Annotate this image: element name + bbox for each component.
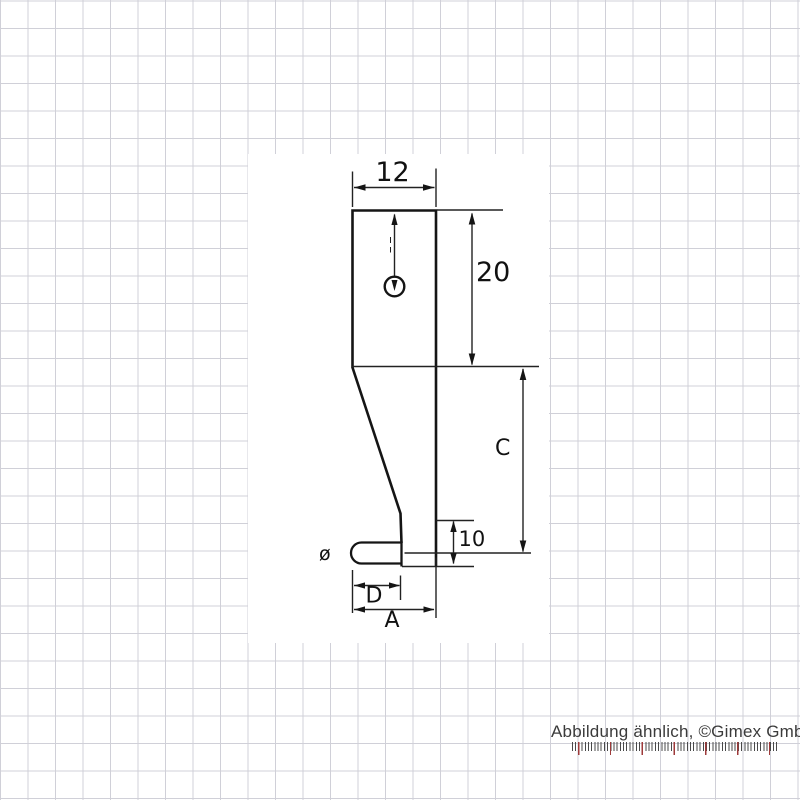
body-slope-edge (353, 368, 402, 544)
indicator-arrow-up (391, 214, 397, 226)
dim-12-arrow-left (354, 184, 366, 191)
indicator-circle-arrow-down (392, 280, 398, 291)
dim-20-arrow-top (469, 213, 476, 225)
dim-12-label: 12 (375, 157, 409, 188)
dim-10-label: 10 (459, 527, 486, 551)
dim-20-label: 20 (476, 257, 510, 288)
caption-text: Abbildung ähnlich, ©Gimex GmbH (551, 723, 800, 741)
probe-tip (351, 543, 401, 567)
dim-10-arrow-bottom (450, 553, 456, 564)
diameter-symbol: ø (319, 543, 331, 565)
dim-20-arrow-bottom (469, 354, 476, 366)
dim-D-label: D (366, 584, 383, 609)
dim-10-arrow-top (450, 521, 456, 532)
ruler-graphic (572, 742, 777, 755)
dim-D-arrow-right (389, 582, 400, 588)
dim-C-arrow-bottom (520, 541, 527, 553)
dim-12-arrow-right (423, 184, 435, 191)
dim-A-label: A (384, 608, 399, 633)
dim-C-label: C (495, 436, 510, 461)
dim-C-arrow-top (520, 368, 527, 380)
technical-drawing: 12 20 C 10 ø D A (0, 0, 800, 800)
dim-A-arrow-left (354, 606, 365, 612)
dim-D-arrow-left (354, 582, 365, 588)
dim-A-arrow-right (424, 606, 435, 612)
